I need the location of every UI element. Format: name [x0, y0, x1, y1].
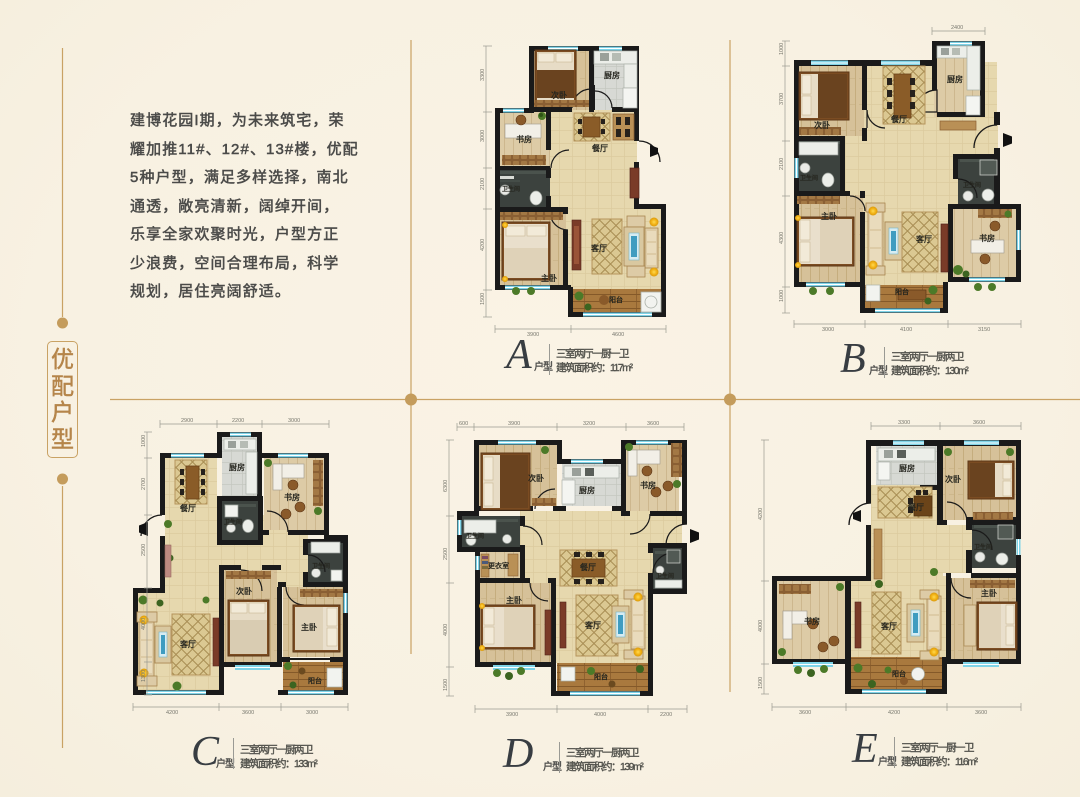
svg-text:6300: 6300 [443, 480, 449, 492]
svg-text:卫生间: 卫生间 [656, 572, 674, 580]
svg-text:1300: 1300 [141, 670, 147, 682]
svg-text:1500: 1500 [480, 293, 486, 305]
svg-text:3900: 3900 [508, 421, 520, 427]
svg-text:2100: 2100 [480, 178, 486, 190]
svg-text:3000: 3000 [288, 418, 300, 424]
svg-text:2500: 2500 [141, 544, 147, 556]
svg-text:3600: 3600 [973, 420, 985, 426]
svg-text:厨房: 厨房 [579, 485, 595, 495]
svg-text:阳台: 阳台 [308, 676, 322, 685]
svg-text:更衣室: 更衣室 [488, 561, 509, 570]
svg-text:客厅: 客厅 [916, 234, 932, 244]
svg-text:阳台: 阳台 [892, 669, 906, 678]
svg-text:卫生间: 卫生间 [224, 518, 242, 526]
svg-text:客厅: 客厅 [585, 620, 601, 630]
svg-text:3150: 3150 [978, 327, 990, 333]
svg-text:1000: 1000 [779, 43, 785, 55]
svg-text:次卧: 次卧 [236, 586, 252, 596]
svg-text:4200: 4200 [758, 508, 764, 520]
svg-text:书房: 书房 [804, 616, 820, 626]
svg-text:3600: 3600 [647, 421, 659, 427]
svg-text:书房: 书房 [640, 480, 656, 490]
svg-text:阳台: 阳台 [609, 295, 623, 304]
svg-text:3600: 3600 [242, 710, 254, 716]
svg-text:主卧: 主卧 [301, 622, 317, 632]
svg-text:餐厅: 餐厅 [891, 115, 907, 124]
svg-text:2700: 2700 [141, 478, 147, 490]
svg-text:餐厅: 餐厅 [592, 144, 608, 153]
svg-text:厨房: 厨房 [229, 462, 245, 472]
svg-text:餐厅: 餐厅 [180, 504, 196, 513]
svg-text:次卧: 次卧 [945, 474, 961, 484]
svg-text:餐厅: 餐厅 [580, 563, 596, 572]
svg-text:3900: 3900 [506, 712, 518, 718]
svg-text:次卧: 次卧 [528, 473, 544, 483]
svg-text:3600: 3600 [799, 710, 811, 716]
svg-text:4600: 4600 [612, 332, 624, 338]
svg-text:卫生间: 卫生间 [974, 543, 992, 551]
svg-text:4000: 4000 [443, 624, 449, 636]
svg-text:餐厅: 餐厅 [908, 503, 924, 512]
svg-text:卫生间: 卫生间 [502, 185, 520, 193]
svg-text:600: 600 [459, 421, 468, 427]
svg-text:卫生间: 卫生间 [800, 174, 818, 182]
svg-text:1500: 1500 [758, 677, 764, 689]
svg-text:客厅: 客厅 [591, 243, 607, 253]
svg-text:阳台: 阳台 [895, 287, 909, 296]
svg-text:2400: 2400 [951, 25, 963, 31]
svg-text:2200: 2200 [660, 712, 672, 718]
svg-text:主卧: 主卧 [981, 588, 997, 598]
svg-text:3300: 3300 [898, 420, 910, 426]
svg-text:3200: 3200 [583, 421, 595, 427]
svg-text:1000: 1000 [779, 290, 785, 302]
svg-text:4200: 4200 [166, 710, 178, 716]
svg-text:厨房: 厨房 [947, 74, 963, 84]
svg-text:主卧: 主卧 [541, 273, 557, 283]
svg-text:4200: 4200 [480, 239, 486, 251]
svg-text:主卧: 主卧 [821, 211, 837, 221]
svg-text:厨房: 厨房 [604, 70, 620, 80]
svg-text:书房: 书房 [284, 492, 300, 502]
svg-text:4200: 4200 [888, 710, 900, 716]
svg-text:2900: 2900 [181, 418, 193, 424]
svg-text:卫生间: 卫生间 [466, 532, 484, 540]
svg-text:客厅: 客厅 [881, 621, 897, 631]
svg-text:次卧: 次卧 [814, 120, 830, 130]
svg-text:2500: 2500 [443, 548, 449, 560]
svg-text:3000: 3000 [306, 710, 318, 716]
svg-text:阳台: 阳台 [594, 672, 608, 681]
svg-text:2100: 2100 [779, 158, 785, 170]
svg-text:3000: 3000 [822, 327, 834, 333]
svg-text:4100: 4100 [900, 327, 912, 333]
svg-text:厨房: 厨房 [899, 463, 915, 473]
svg-text:1500: 1500 [443, 679, 449, 691]
svg-text:客厅: 客厅 [180, 639, 196, 649]
svg-text:书房: 书房 [979, 233, 995, 243]
svg-text:4000: 4000 [141, 618, 147, 630]
svg-text:4300: 4300 [779, 232, 785, 244]
svg-text:2200: 2200 [232, 418, 244, 424]
svg-text:1000: 1000 [141, 435, 147, 447]
svg-text:卫生间: 卫生间 [963, 181, 981, 189]
svg-text:3000: 3000 [480, 130, 486, 142]
svg-text:书房: 书房 [516, 134, 532, 144]
svg-text:3600: 3600 [975, 710, 987, 716]
svg-text:主卧: 主卧 [506, 595, 522, 605]
svg-text:3300: 3300 [480, 69, 486, 81]
svg-text:3700: 3700 [779, 93, 785, 105]
svg-text:4000: 4000 [594, 712, 606, 718]
svg-text:次卧: 次卧 [551, 90, 567, 100]
svg-text:卫生间: 卫生间 [312, 562, 330, 570]
svg-text:4000: 4000 [758, 620, 764, 632]
